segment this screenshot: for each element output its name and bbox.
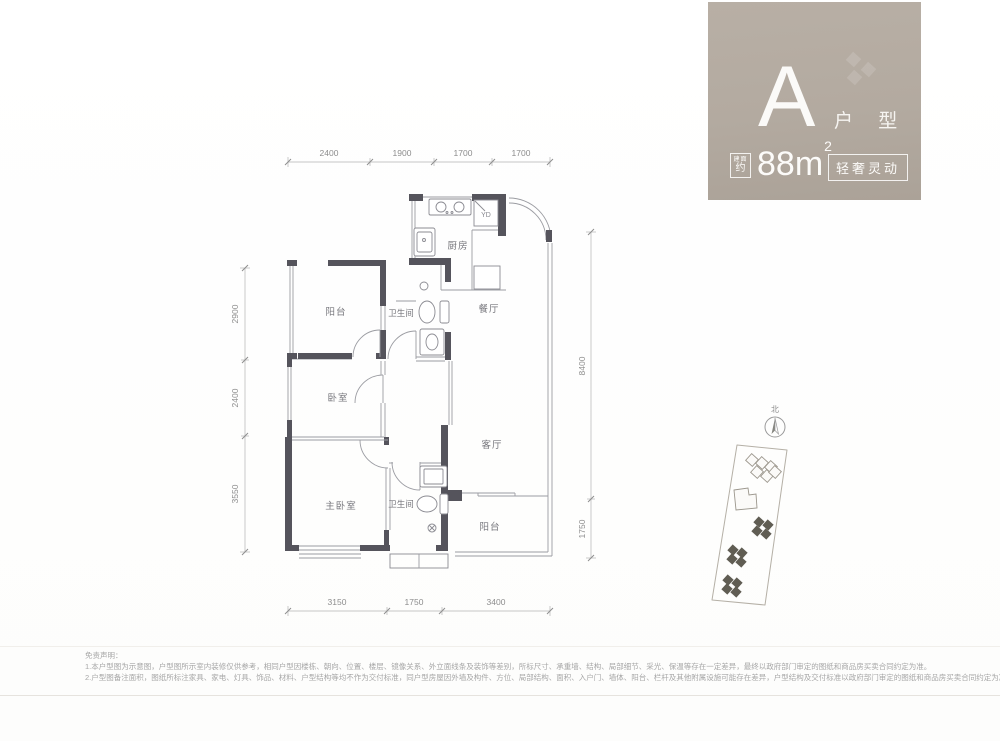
room-label-balcony-south: 阳台	[479, 521, 500, 533]
dim-left-1: 2900	[230, 304, 240, 323]
dim-left-3: 3550	[230, 484, 240, 503]
disclaimer-line-2: 2.户型图备注面积，图纸所标注家具、家电、灯具、饰品、材料、户型结构等均不作为交…	[85, 672, 985, 683]
dim-top-4: 1700	[512, 148, 531, 158]
dim-bottom-1: 3150	[328, 597, 347, 607]
area-sup: 2	[824, 138, 832, 154]
basin-small-icon	[420, 282, 428, 290]
room-label-kitchen: 厨房	[447, 240, 468, 252]
disclaimer-title: 免责声明：	[85, 650, 985, 661]
site-buildings-highlighted	[721, 516, 773, 597]
toilet-2-icon	[417, 494, 448, 514]
stove-icon	[429, 199, 471, 215]
site-buildings-outline	[734, 454, 781, 510]
north-label: 北	[771, 405, 779, 414]
site-plan: 北	[685, 398, 835, 648]
dim-top-1: 2400	[320, 148, 339, 158]
dim-bottom-2: 1750	[405, 597, 424, 607]
room-label-balcony-north: 阳台	[325, 306, 346, 318]
page: A 户 型 建面 约 88m2 轻奢灵动 2400 1900 1700 1700	[0, 0, 1000, 741]
fridge-icon	[474, 266, 500, 289]
area-value: 88m2	[757, 145, 831, 184]
disclaimer-line-1: 1.本户型图为示意图，户型图所示室内装修仅供参考，相同户型因楼栋、朝向、位置、楼…	[85, 661, 985, 672]
disclaimer-block: 免责声明： 1.本户型图为示意图，户型图所示室内装修仅供参考，相同户型因楼栋、朝…	[85, 650, 985, 683]
room-label-living: 客厅	[481, 439, 502, 451]
room-label-bedroom: 卧室	[327, 392, 348, 404]
area-number: 88m	[757, 145, 823, 183]
area-approx-badge: 建面 约	[730, 153, 751, 178]
unit-type-label: 户 型	[834, 106, 907, 133]
floor-drain-icon	[428, 524, 436, 532]
flue-label: YD	[481, 212, 491, 219]
dim-top-2: 1900	[393, 148, 412, 158]
north-arrow-icon: 北	[765, 405, 785, 437]
dimension-lines: 2400 1900 1700 1700 2900 2400 3550 8400 …	[230, 148, 596, 616]
toilet-1-icon	[419, 301, 449, 323]
area-badge-bottom: 约	[736, 164, 746, 174]
room-label-bath-1: 卫生间	[388, 308, 414, 318]
kitchen-sink-icon	[414, 228, 435, 256]
door-arcs	[353, 330, 420, 490]
dim-right-2: 1750	[577, 519, 587, 538]
unit-type-letter: A	[758, 54, 815, 140]
room-label-dining: 餐厅	[478, 303, 499, 315]
tagline-badge: 轻奢灵动	[828, 154, 908, 181]
room-label-bath-2: 卫生间	[388, 499, 414, 509]
floorplan-drawing: 2400 1900 1700 1700 2900 2400 3550 8400 …	[228, 144, 604, 622]
divider-lower	[0, 695, 1000, 696]
type-header-panel: A 户 型 建面 约 88m2 轻奢灵动	[708, 2, 921, 200]
dim-bottom-3: 3400	[487, 597, 506, 607]
dim-left-2: 2400	[230, 388, 240, 407]
dim-top-3: 1700	[454, 148, 473, 158]
washbasin-1-icon	[420, 329, 444, 355]
washbasin-2-icon	[420, 466, 447, 487]
room-label-master-bedroom: 主卧室	[325, 500, 357, 512]
dim-right-1: 8400	[577, 356, 587, 375]
divider-upper	[0, 646, 1000, 647]
flue-box: YD	[474, 200, 498, 226]
